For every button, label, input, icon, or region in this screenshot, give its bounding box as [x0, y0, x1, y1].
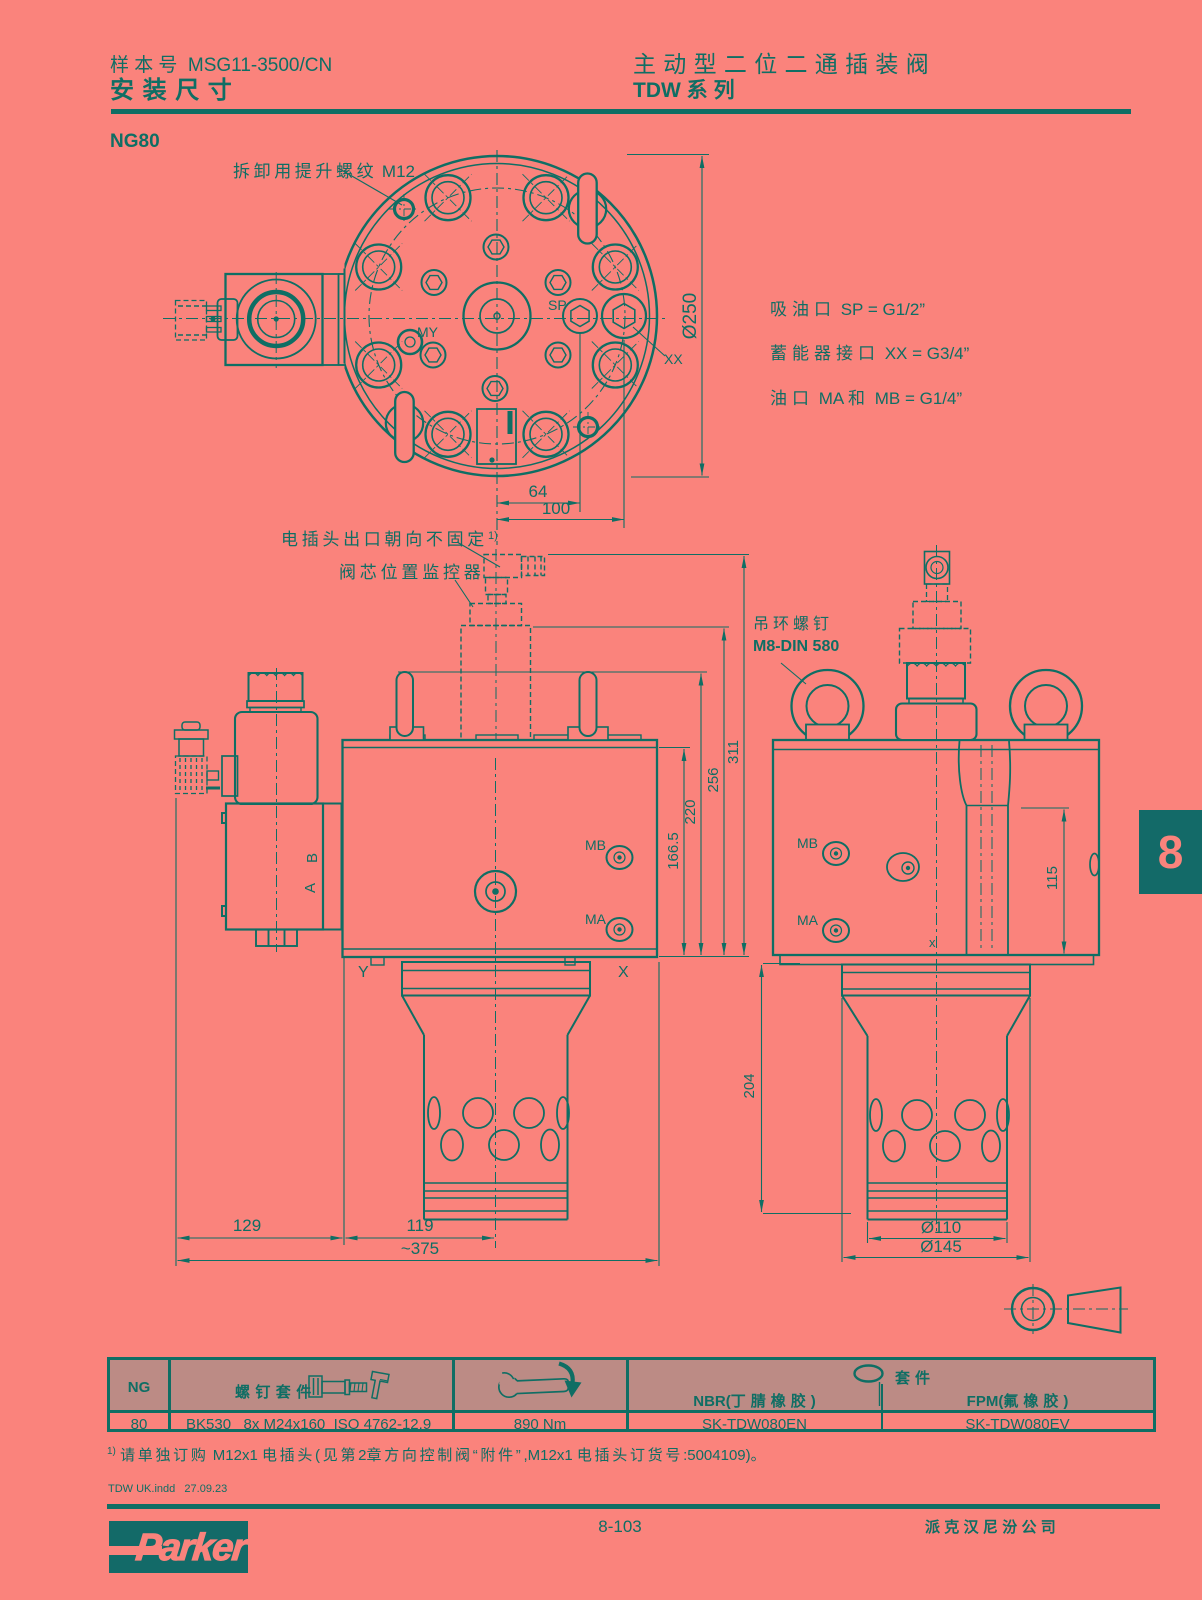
svg-text:100: 100: [542, 499, 570, 518]
svg-text:311: 311: [725, 740, 742, 764]
svg-text:MY: MY: [417, 324, 439, 340]
svg-text:256: 256: [705, 767, 722, 792]
svg-text:XX: XX: [664, 351, 683, 367]
svg-text:Ø145: Ø145: [920, 1237, 962, 1256]
svg-text:SP: SP: [548, 297, 567, 313]
svg-text:拆卸用提升螺纹 M12: 拆卸用提升螺纹 M12: [233, 162, 415, 181]
svg-text:电插头出口朝向不固定1): 电插头出口朝向不固定1): [281, 530, 498, 549]
svg-text:x: x: [929, 935, 936, 950]
svg-text:MB: MB: [585, 837, 606, 853]
svg-text:A: A: [302, 883, 319, 893]
svg-text:X: X: [618, 964, 629, 981]
svg-text:M8-DIN 580: M8-DIN 580: [753, 638, 839, 655]
svg-text:129: 129: [233, 1216, 261, 1235]
svg-text:吊环螺钉: 吊环螺钉: [753, 615, 833, 633]
svg-text:Ø110: Ø110: [921, 1218, 961, 1237]
svg-text:204: 204: [741, 1073, 758, 1098]
svg-text:166.5: 166.5: [665, 832, 682, 870]
svg-text:220: 220: [682, 799, 699, 824]
svg-text:MA: MA: [585, 911, 607, 927]
svg-text:115: 115: [1044, 866, 1061, 890]
svg-text:阀芯位置监控器: 阀芯位置监控器: [339, 563, 485, 582]
svg-text:~375: ~375: [401, 1239, 439, 1258]
svg-text:MB: MB: [797, 835, 818, 851]
svg-text:MA: MA: [797, 912, 819, 928]
svg-text:Ø250: Ø250: [680, 293, 701, 339]
svg-text:119: 119: [406, 1216, 433, 1235]
svg-text:Y: Y: [358, 964, 369, 981]
svg-text:B: B: [304, 853, 321, 863]
